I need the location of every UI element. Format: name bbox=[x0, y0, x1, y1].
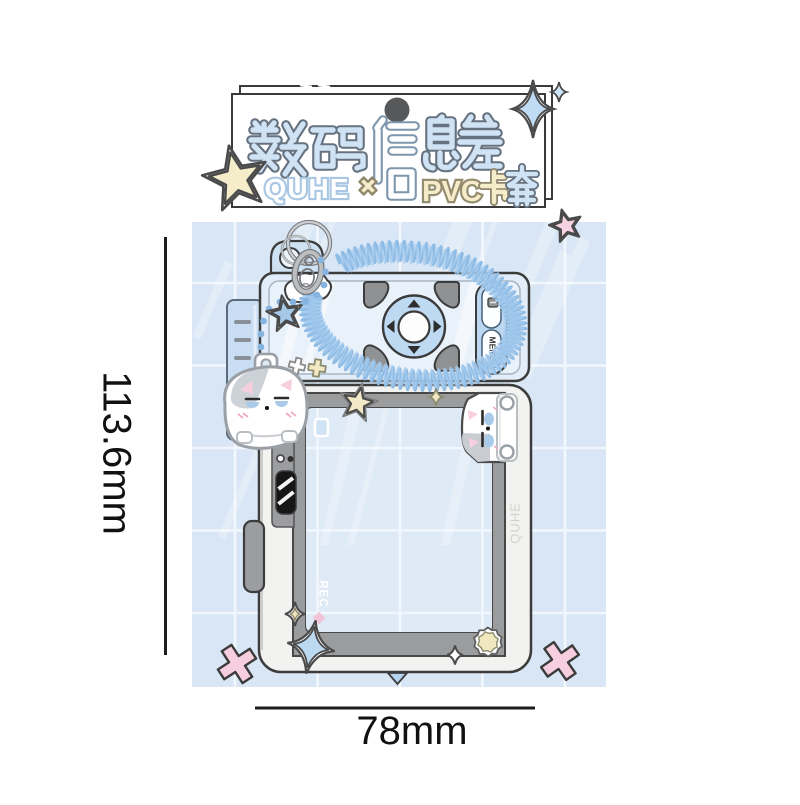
svg-text:QUHE: QUHE bbox=[507, 502, 522, 544]
svg-text:113.6mm: 113.6mm bbox=[94, 371, 138, 535]
svg-text:QUHE: QUHE bbox=[265, 173, 350, 204]
svg-text:PVC: PVC bbox=[422, 176, 482, 208]
svg-text:78mm: 78mm bbox=[356, 709, 467, 753]
svg-text:REC: REC bbox=[316, 580, 328, 607]
